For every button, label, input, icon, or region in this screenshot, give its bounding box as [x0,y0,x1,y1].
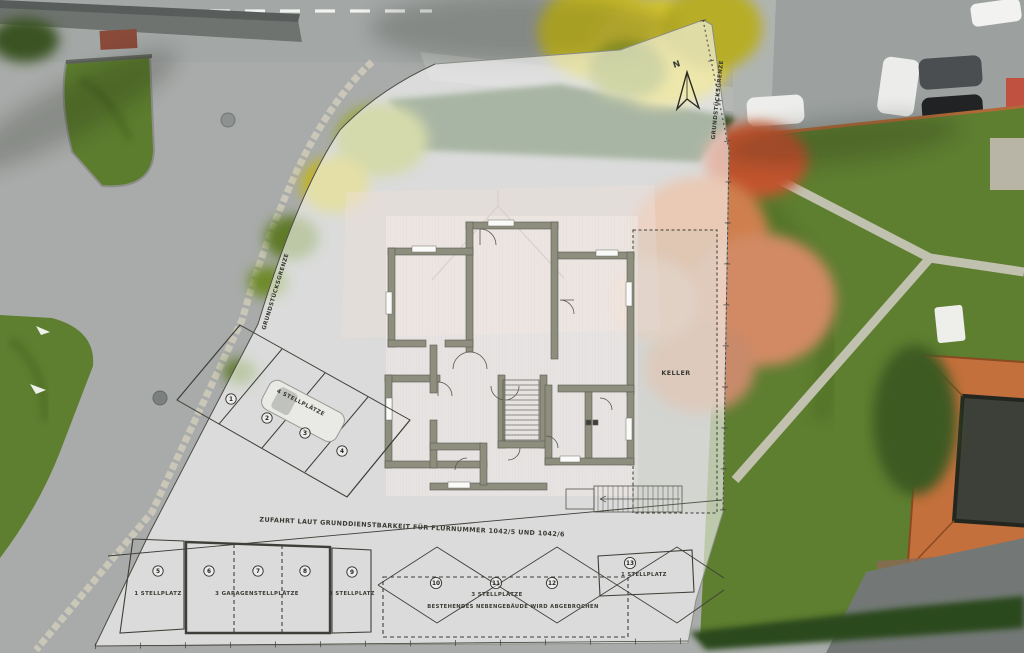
stall-number-4: 4 [337,446,347,456]
stall-number-10: 10 [430,577,441,588]
stall13-label: 1 STELLPLATZ [621,572,667,578]
tree-by-building [873,345,957,495]
svg-text:3: 3 [303,431,307,437]
svg-text:12: 12 [548,581,556,587]
demolition-note: BESTEHENDES NEBENGEBÄUDE WIRD ABGEBROCHE… [427,603,598,610]
stall-number-5: 5 [153,566,163,576]
svg-text:7: 7 [256,569,260,575]
svg-text:2: 2 [265,416,269,422]
stall-number-7: 7 [253,566,263,576]
svg-text:10: 10 [432,581,440,587]
stall-number-2: 2 [262,413,272,423]
stall-number-8: 8 [300,566,310,576]
svg-text:5: 5 [156,569,160,575]
stall-number-11: 11 [490,577,501,588]
demolition-label: 3 STELLPLÄTZE [471,591,522,598]
pale-patch [990,138,1024,190]
stall-number-3: 3 [300,428,310,438]
manhole-cover [221,113,235,127]
white-car-2 [746,94,805,127]
svg-text:4: 4 [340,449,344,455]
svg-text:9: 9 [350,570,354,576]
site-plan-canvas: N GRUNDSTÜCKSGRENZE GRUNDSTÜCKSGRENZE KE… [0,0,1024,653]
svg-text:1: 1 [229,397,233,403]
stall-number-9: 9 [347,567,357,577]
svg-text:11: 11 [492,581,500,587]
stall5-label: 1 STELLPLATZ [134,591,181,597]
courtyard [954,396,1024,528]
svg-text:6: 6 [207,569,211,575]
white-car [876,56,921,118]
manhole-cover-2 [153,391,167,405]
stall-number-13: 13 [624,557,635,568]
svg-text:13: 13 [626,561,634,567]
garden-furniture [934,305,966,344]
svg-text:8: 8 [303,569,307,575]
red-ground-patch [100,29,138,50]
stall9-label: 1 STELLPLATZ [329,591,375,597]
stall-number-6: 6 [204,566,214,576]
stall-number-1: 1 [226,394,236,404]
gray-car [918,55,983,90]
garage-row-label: 3 GARAGENSTELLPLÄTZE [215,590,299,597]
stall-number-12: 12 [546,577,557,588]
keller-label: KELLER [661,369,690,377]
aerial-site-plan: N GRUNDSTÜCKSGRENZE GRUNDSTÜCKSGRENZE KE… [0,0,1024,653]
